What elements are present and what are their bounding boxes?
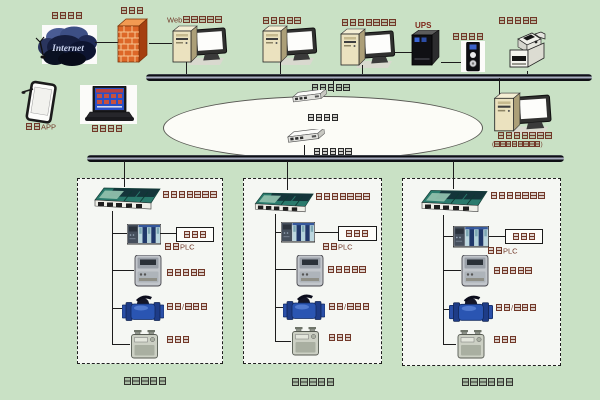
svg-text:Internet: Internet <box>51 44 84 54</box>
